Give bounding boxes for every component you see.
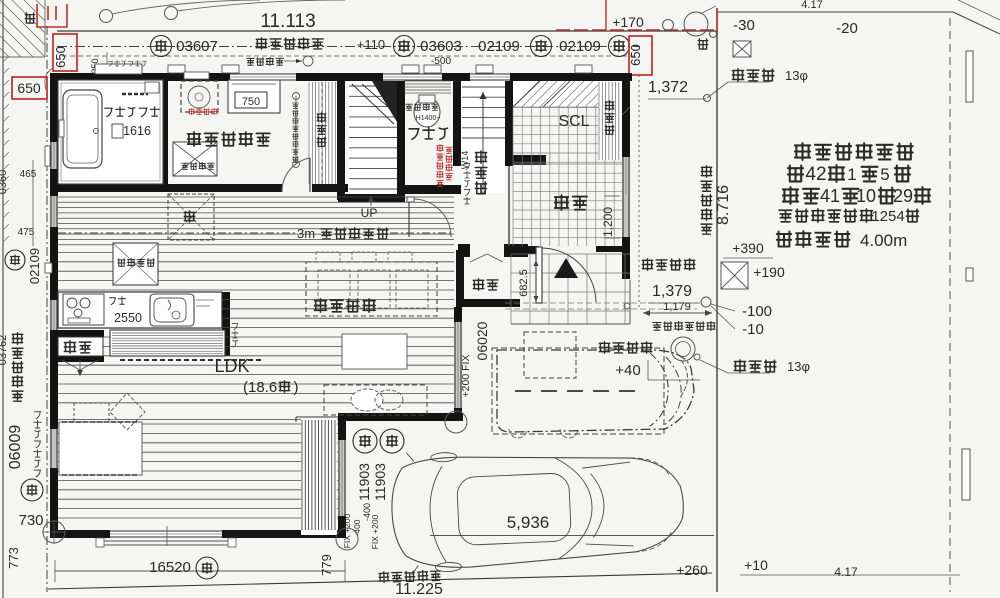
svg-text:16520: 16520 bbox=[149, 559, 191, 576]
svg-text:+10: +10 bbox=[744, 557, 768, 573]
svg-text:+170: +170 bbox=[612, 14, 644, 30]
svg-text:06009: 06009 bbox=[7, 425, 24, 470]
svg-text:11903: 11903 bbox=[356, 463, 372, 501]
svg-text:1616: 1616 bbox=[123, 124, 151, 138]
svg-text:13φ: 13φ bbox=[787, 359, 810, 374]
svg-text:8.716: 8.716 bbox=[715, 185, 732, 225]
svg-text:FIX +200: FIX +200 bbox=[342, 513, 352, 548]
svg-text:03607: 03607 bbox=[176, 38, 218, 55]
svg-text:FIX +200: FIX +200 bbox=[370, 514, 380, 549]
svg-text:4.00m: 4.00m bbox=[860, 231, 907, 250]
svg-text:03603: 03603 bbox=[420, 38, 462, 55]
svg-text:-20: -20 bbox=[836, 20, 858, 37]
svg-text:3m: 3m bbox=[297, 226, 315, 241]
svg-text:LDK: LDK bbox=[214, 356, 249, 376]
svg-text:41: 41 bbox=[820, 186, 840, 206]
svg-text:1: 1 bbox=[847, 165, 856, 184]
svg-text:06020: 06020 bbox=[474, 321, 490, 360]
svg-text:03762: 03762 bbox=[0, 335, 9, 366]
svg-text:+200 FIX: +200 FIX bbox=[460, 355, 472, 398]
svg-text:650: 650 bbox=[628, 44, 643, 66]
svg-text:4.17: 4.17 bbox=[801, 0, 822, 11]
svg-text:4.17: 4.17 bbox=[834, 565, 858, 579]
svg-text:465: 465 bbox=[20, 169, 37, 180]
svg-text:(18.6: (18.6 bbox=[243, 379, 277, 396]
svg-text:650: 650 bbox=[53, 46, 68, 68]
svg-text:29: 29 bbox=[893, 186, 913, 206]
svg-text:11903: 11903 bbox=[372, 463, 388, 501]
svg-text:+390: +390 bbox=[732, 240, 764, 256]
svg-text:02109: 02109 bbox=[27, 248, 42, 284]
svg-text:SCL: SCL bbox=[558, 113, 589, 130]
svg-text:): ) bbox=[294, 379, 299, 396]
svg-text:+40: +40 bbox=[615, 362, 640, 379]
svg-text:773: 773 bbox=[6, 547, 21, 569]
svg-text:779: 779 bbox=[319, 554, 334, 576]
svg-text:-10: -10 bbox=[742, 321, 764, 338]
svg-text:475: 475 bbox=[18, 227, 35, 238]
svg-text:+260: +260 bbox=[676, 562, 708, 578]
svg-text:1,200: 1,200 bbox=[601, 207, 615, 237]
svg-text:730: 730 bbox=[18, 512, 43, 529]
svg-text:-30: -30 bbox=[733, 17, 755, 34]
svg-text:-100: -100 bbox=[742, 303, 772, 320]
svg-text:650: 650 bbox=[17, 80, 41, 96]
svg-text:682.5: 682.5 bbox=[518, 269, 530, 297]
svg-text:2550: 2550 bbox=[114, 311, 142, 325]
svg-text:5,936: 5,936 bbox=[507, 513, 550, 532]
svg-text:+190: +190 bbox=[753, 264, 785, 280]
svg-text:10: 10 bbox=[856, 186, 876, 206]
svg-text:1,379: 1,379 bbox=[652, 283, 692, 300]
svg-text:+110: +110 bbox=[357, 37, 385, 52]
svg-text:02109: 02109 bbox=[478, 38, 520, 55]
svg-text:1,179: 1,179 bbox=[663, 301, 691, 313]
svg-text:UP: UP bbox=[361, 206, 378, 220]
svg-text:02109: 02109 bbox=[559, 38, 601, 55]
svg-text:11.113: 11.113 bbox=[260, 11, 315, 32]
svg-text:H1400~: H1400~ bbox=[416, 115, 441, 122]
svg-text:11.225: 11.225 bbox=[395, 581, 443, 598]
svg-text:0360: 0360 bbox=[0, 170, 9, 194]
svg-text:1254: 1254 bbox=[871, 208, 904, 225]
svg-text:1,372: 1,372 bbox=[648, 79, 688, 96]
svg-text:5: 5 bbox=[880, 165, 889, 184]
svg-text:750: 750 bbox=[242, 96, 260, 108]
svg-text:42: 42 bbox=[805, 164, 826, 185]
svg-text:13φ: 13φ bbox=[785, 68, 808, 83]
